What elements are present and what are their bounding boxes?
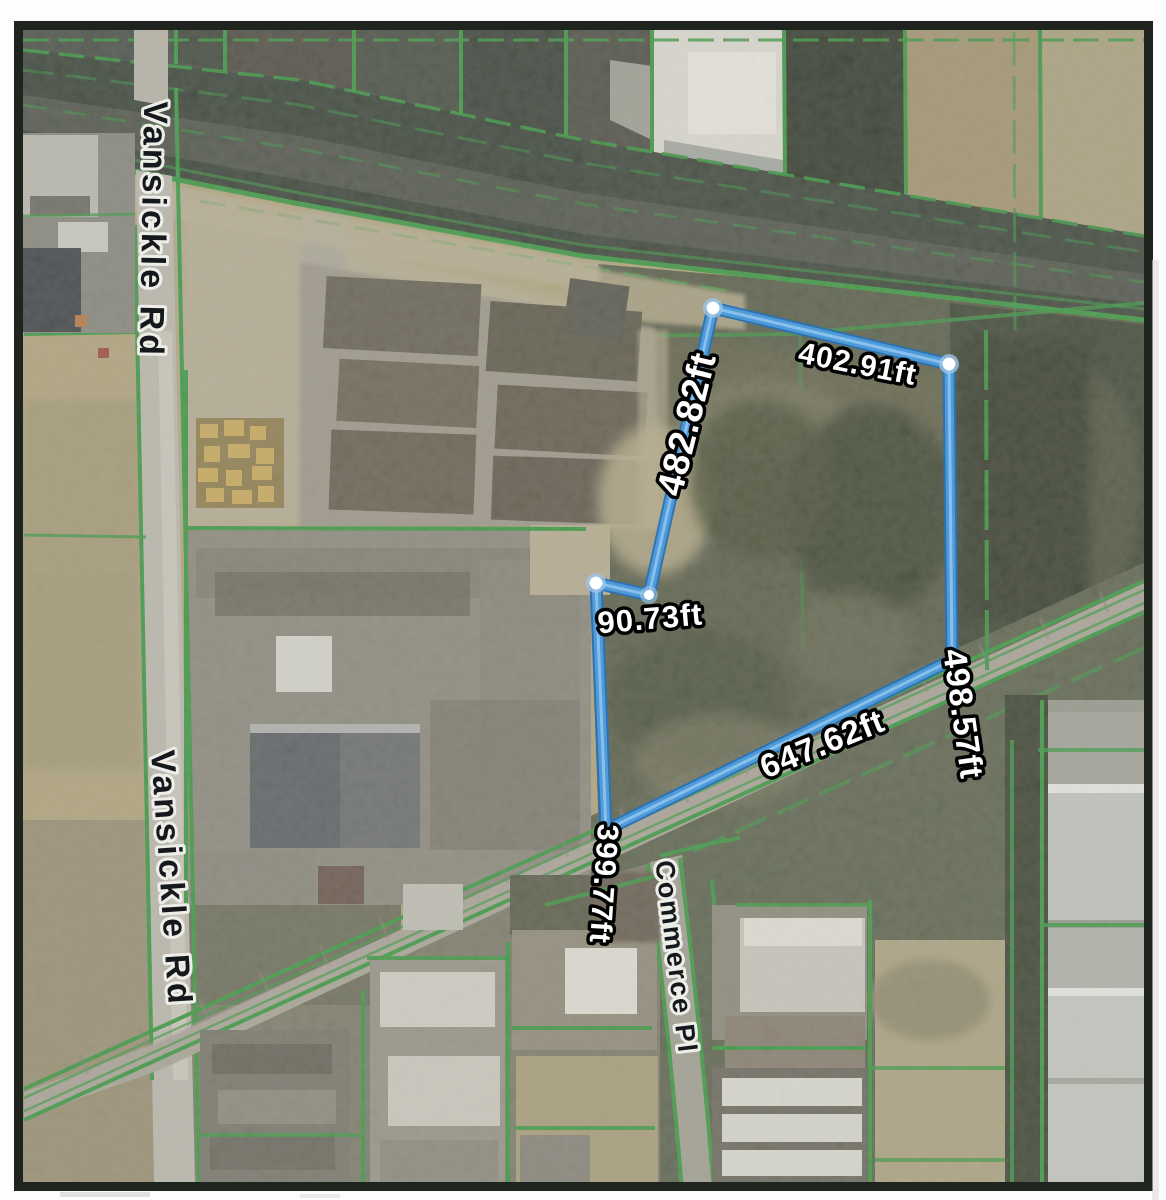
svg-text:Vansickle Rd: Vansickle Rd [133,101,175,359]
